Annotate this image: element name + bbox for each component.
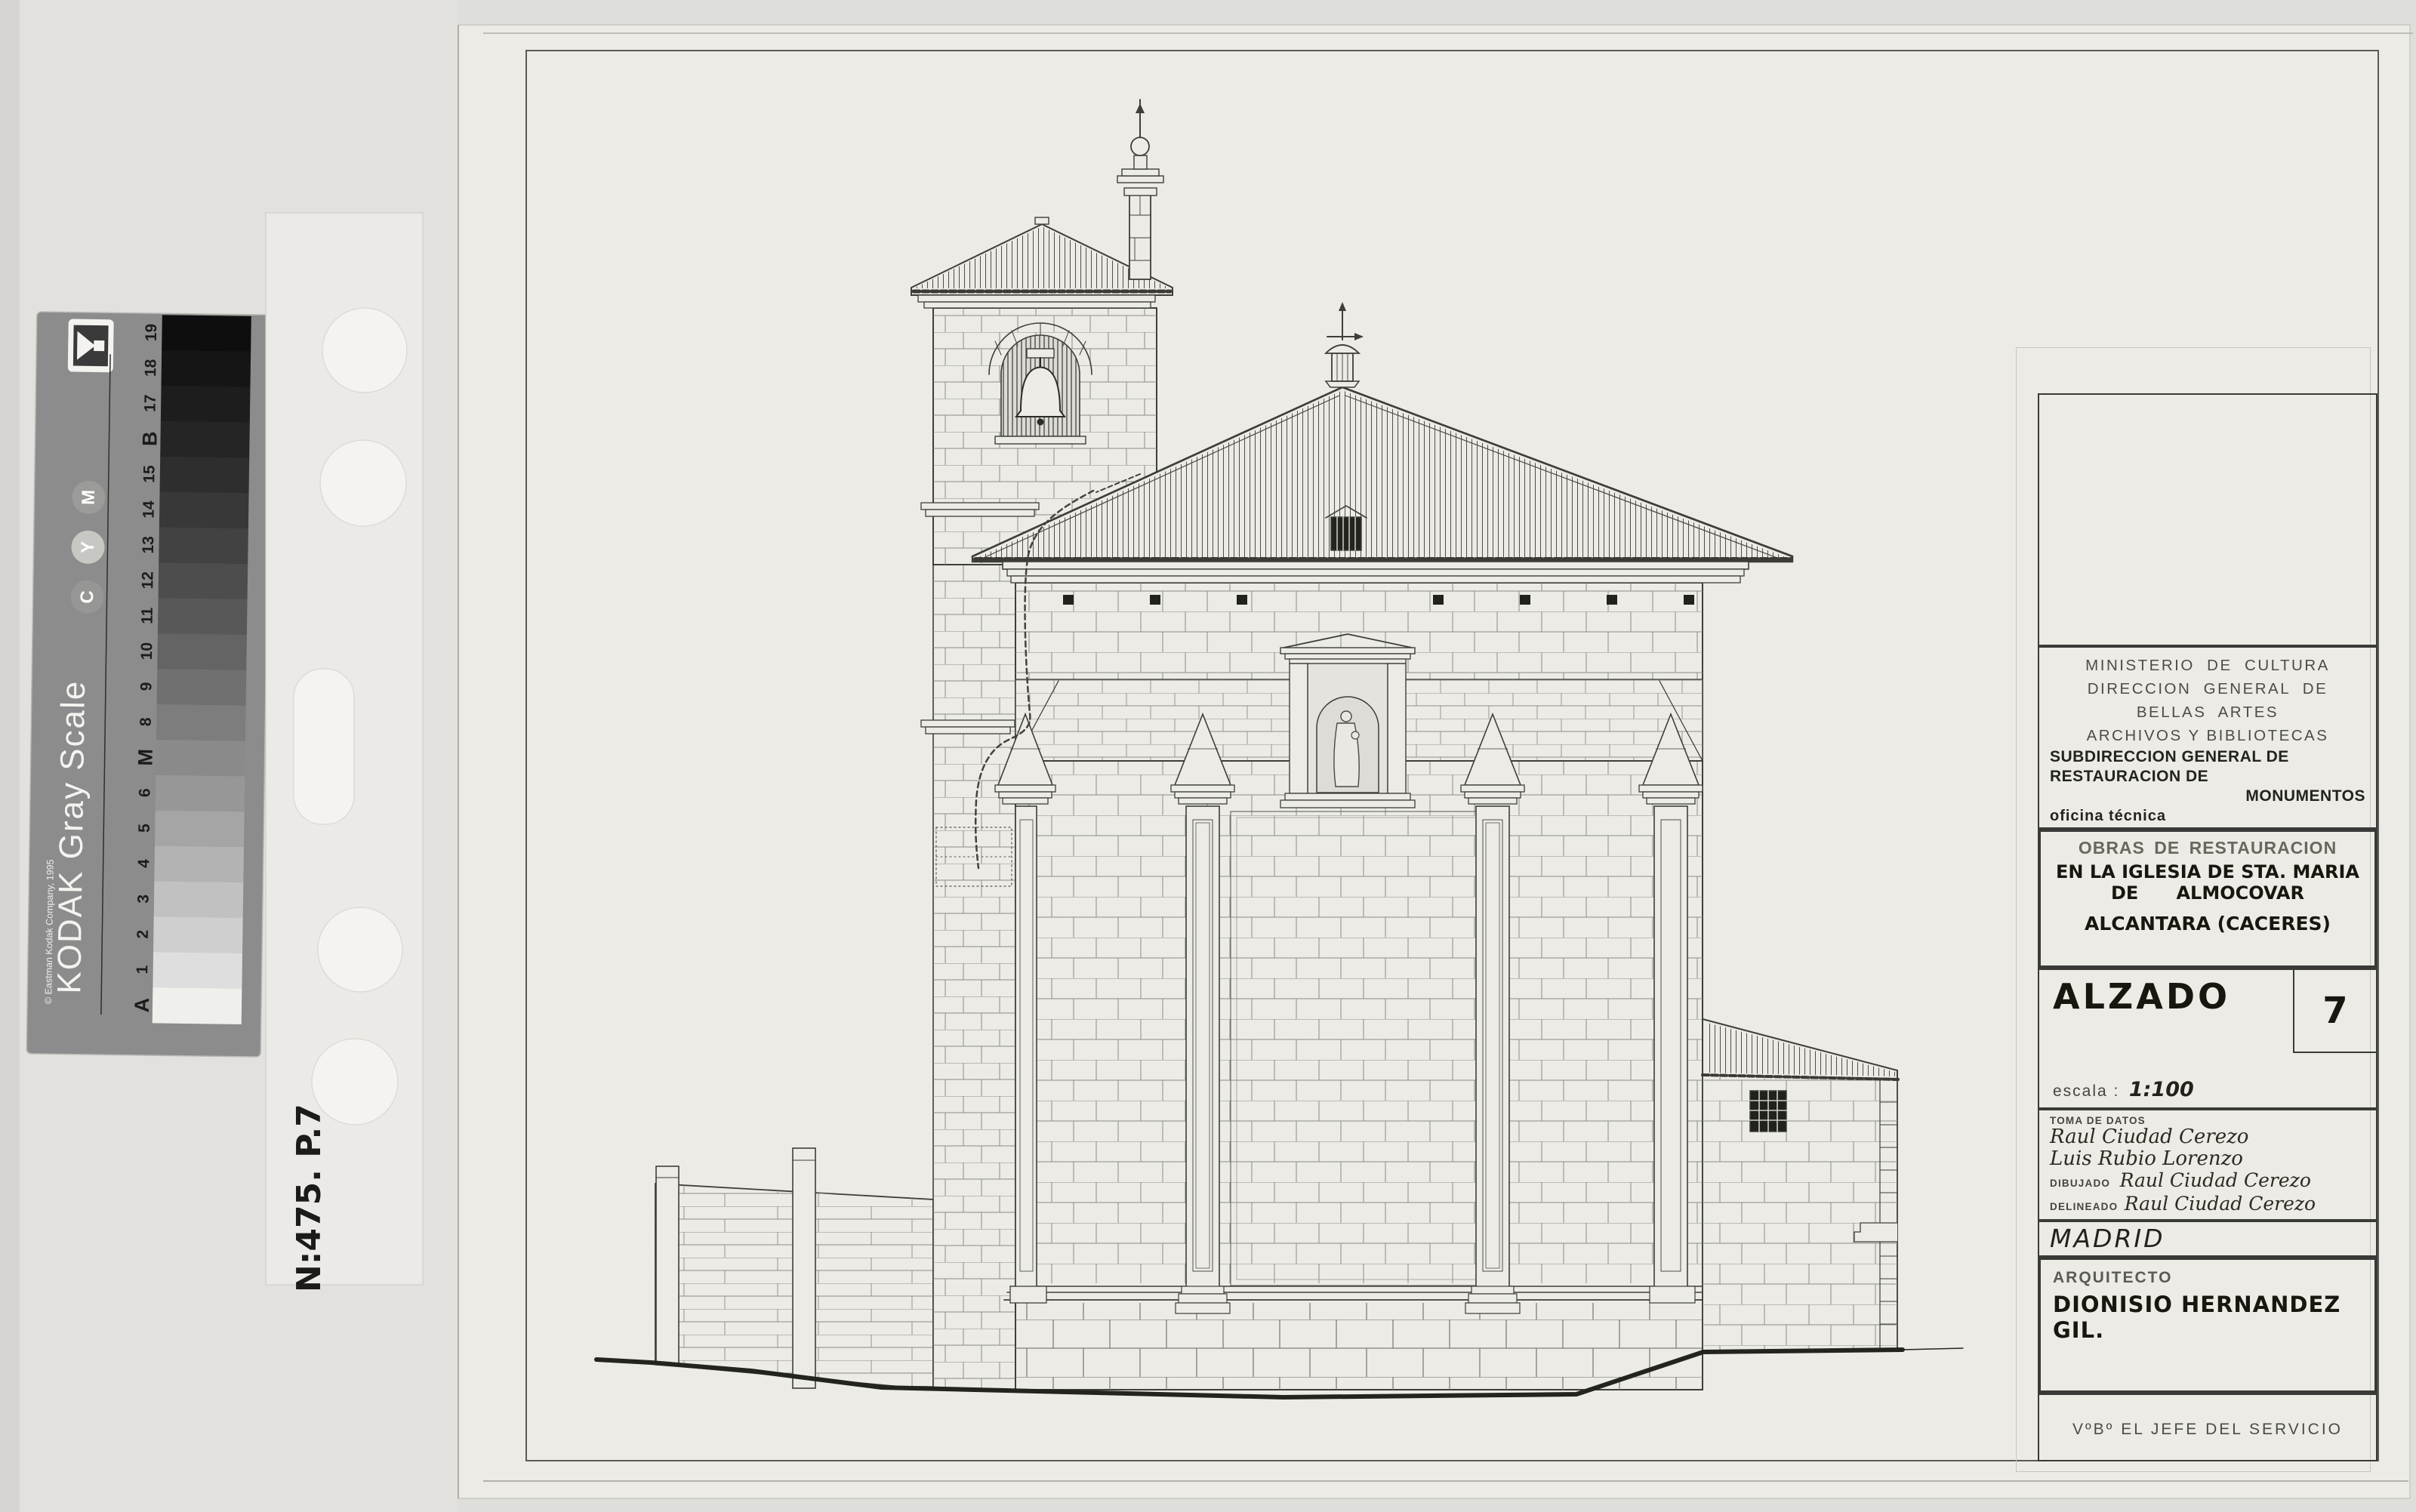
toma-name: Raul Ciudad Cerezo xyxy=(2050,1126,2365,1148)
scale-row: escala : 1:100 xyxy=(2053,1078,2194,1101)
city: MADRID xyxy=(2050,1224,2165,1253)
film-sleeve: N:475. P.7 xyxy=(266,213,423,1292)
ministry-office: oficina técnica xyxy=(2050,806,2365,826)
facade-base-masonry xyxy=(1015,1303,1703,1390)
architect-label: ARQUITECTO xyxy=(2053,1269,2362,1287)
gray-patch-5 xyxy=(155,811,245,848)
gray-patch-9 xyxy=(157,669,247,706)
statue-niche xyxy=(1280,634,1415,808)
gray-scale-step-label: 14 xyxy=(140,500,158,519)
gray-scale-step-label: 5 xyxy=(136,824,153,833)
stamp-box xyxy=(2038,393,2377,646)
punch-hole xyxy=(322,308,407,393)
sheet-number: 7 xyxy=(2322,990,2347,1032)
gray-patch-19 xyxy=(162,315,251,352)
y-dot-label: Y xyxy=(78,541,98,553)
tower-lower-section xyxy=(933,516,1015,1390)
scanned-architectural-plan: { "colors": { "background": "#dededb", "… xyxy=(0,0,2416,1512)
title-block: MINISTERIO DE CULTURA DIRECCION GENERAL … xyxy=(2016,347,2371,1472)
toma-de-datos-label: TOMA DE DATOS xyxy=(2050,1115,2365,1126)
gray-scale-step-label: 15 xyxy=(140,465,158,483)
punch-slot xyxy=(294,669,354,824)
project-header: OBRAS DE RESTAURACION xyxy=(2048,838,2367,858)
gray-patch-17 xyxy=(161,386,251,423)
gray-patch-14 xyxy=(159,492,249,529)
credits-box: TOMA DE DATOS Raul Ciudad Cerezo Luis Ru… xyxy=(2038,1109,2377,1221)
kodak-gray-scale-strip: M Y C KODAK Gray Scale © Eastman Kodak C… xyxy=(26,312,271,1057)
sheet-number-box: 7 xyxy=(2293,970,2376,1053)
ministry-bold-line: MONUMENTOS xyxy=(2050,787,2365,806)
scale-value: 1:100 xyxy=(2129,1078,2194,1101)
cmy-dots: M Y C xyxy=(70,481,105,614)
project-line2: DE ALMOCOVAR xyxy=(2048,882,2367,904)
architect-box: ARQUITECTO DIONISIO HERNANDEZ GIL. xyxy=(2038,1257,2377,1393)
gray-patch-15 xyxy=(160,457,250,494)
ministry-bold-line: SUBDIRECCION GENERAL DE xyxy=(2050,747,2365,767)
sheet-title: ALZADO xyxy=(2053,976,2230,1017)
gray-scale-step-label: M xyxy=(134,749,156,766)
annex-corbel xyxy=(1854,1223,1897,1242)
gray-scale-step-label: 2 xyxy=(134,930,152,939)
ministry-line: BELLAS ARTES xyxy=(2050,701,2365,724)
gray-patch-8 xyxy=(156,704,246,741)
gray-scale-step-label: 8 xyxy=(137,717,155,726)
architect-name: DIONISIO HERNANDEZ GIL. xyxy=(2053,1292,2362,1343)
handwritten-archive-number: N:475. P.7 xyxy=(290,1104,328,1292)
pinnacle-ball-finial xyxy=(1131,137,1149,156)
gray-patch-B xyxy=(160,421,250,458)
ministry-bold-line: RESTAURACION DE xyxy=(2050,767,2365,787)
bell-clapper xyxy=(1037,419,1044,426)
niche-pilaster xyxy=(1290,664,1308,793)
ministry-line: DIRECCION GENERAL DE xyxy=(2050,677,2365,701)
gray-scale-step-label: A xyxy=(131,998,153,1013)
sheet-title-box: ALZADO 7 escala : 1:100 xyxy=(2038,968,2377,1109)
gray-scale-step-label: 11 xyxy=(139,607,156,624)
kodak-strip-copyright: © Eastman Kodak Company, 1995 xyxy=(43,859,56,1004)
ministry-line: ARCHIVOS Y BIBLIOTECAS xyxy=(2050,724,2365,747)
project-line1: EN LA IGLESIA DE STA. MARIA xyxy=(2048,861,2367,882)
dibujado-name: Raul Ciudad Cerezo xyxy=(2120,1169,2311,1191)
gray-scale-step-label: 18 xyxy=(142,359,159,377)
gray-scale-step-label: 19 xyxy=(143,324,160,342)
delineado-label: DELINEADO xyxy=(2050,1201,2118,1212)
gray-scale-step-label: 4 xyxy=(135,859,153,868)
approval-box: VºBº EL JEFE DEL SERVICIO xyxy=(2038,1393,2377,1461)
m-dot-label: M xyxy=(79,490,99,505)
bell-yoke xyxy=(1027,349,1054,358)
ministry-line: MINISTERIO DE CULTURA xyxy=(2050,654,2365,677)
wall-post xyxy=(656,1166,679,1365)
gray-scale-step-label: 13 xyxy=(140,536,157,554)
gray-patch-A xyxy=(153,987,242,1024)
gray-patch-13 xyxy=(159,528,248,565)
gray-patch-10 xyxy=(157,633,247,670)
project-line3: ALCANTARA (CACERES) xyxy=(2048,913,2367,935)
city-box: MADRID xyxy=(2038,1221,2377,1257)
gray-patch-3 xyxy=(154,882,244,919)
scan-left-edge xyxy=(0,0,20,1512)
delineado-name: Raul Ciudad Cerezo xyxy=(2125,1193,2316,1215)
gray-scale-step-label: 12 xyxy=(139,571,156,590)
eaves-cornice xyxy=(1003,562,1749,569)
gray-patch-11 xyxy=(158,598,248,635)
toma-name: Luis Rubio Lorenzo xyxy=(2050,1148,2365,1170)
gray-scale-step-label: 17 xyxy=(142,394,159,412)
gray-patch-2 xyxy=(153,916,243,953)
ministry-box: MINISTERIO DE CULTURA DIRECCION GENERAL … xyxy=(2038,646,2377,829)
gray-patch-4 xyxy=(154,846,244,883)
gray-scale-step-label: 1 xyxy=(134,965,151,974)
kodak-logo-icon xyxy=(68,319,114,372)
niche-pilaster xyxy=(1388,664,1406,793)
gray-scale-step-label: 10 xyxy=(138,642,156,661)
gray-scale-step-label: 3 xyxy=(134,895,152,904)
punch-hole xyxy=(318,907,402,992)
punch-hole xyxy=(320,440,406,526)
gray-patch-1 xyxy=(153,952,242,989)
gray-scale-step-label: 9 xyxy=(137,682,155,691)
wall-post xyxy=(793,1148,815,1388)
gray-patch-M xyxy=(156,740,245,777)
gray-scale-step-label: 6 xyxy=(136,788,153,797)
approval-text: VºBº EL JEFE DEL SERVICIO xyxy=(2039,1421,2376,1439)
gray-patch-6 xyxy=(156,775,245,812)
gray-scale-step-label: B xyxy=(138,431,161,446)
statue-of-virgin xyxy=(1341,711,1351,722)
project-box: OBRAS DE RESTAURACION EN LA IGLESIA DE S… xyxy=(2038,829,2377,968)
dibujado-label: DIBUJADO xyxy=(2050,1178,2110,1189)
gray-patch-12 xyxy=(159,562,248,599)
gray-patch-18 xyxy=(162,350,251,387)
kodak-strip-title: KODAK Gray Scale xyxy=(51,679,92,994)
scale-label: escala : xyxy=(2053,1082,2119,1100)
c-dot-label: C xyxy=(77,590,97,604)
annex-building xyxy=(1703,1019,1898,1351)
